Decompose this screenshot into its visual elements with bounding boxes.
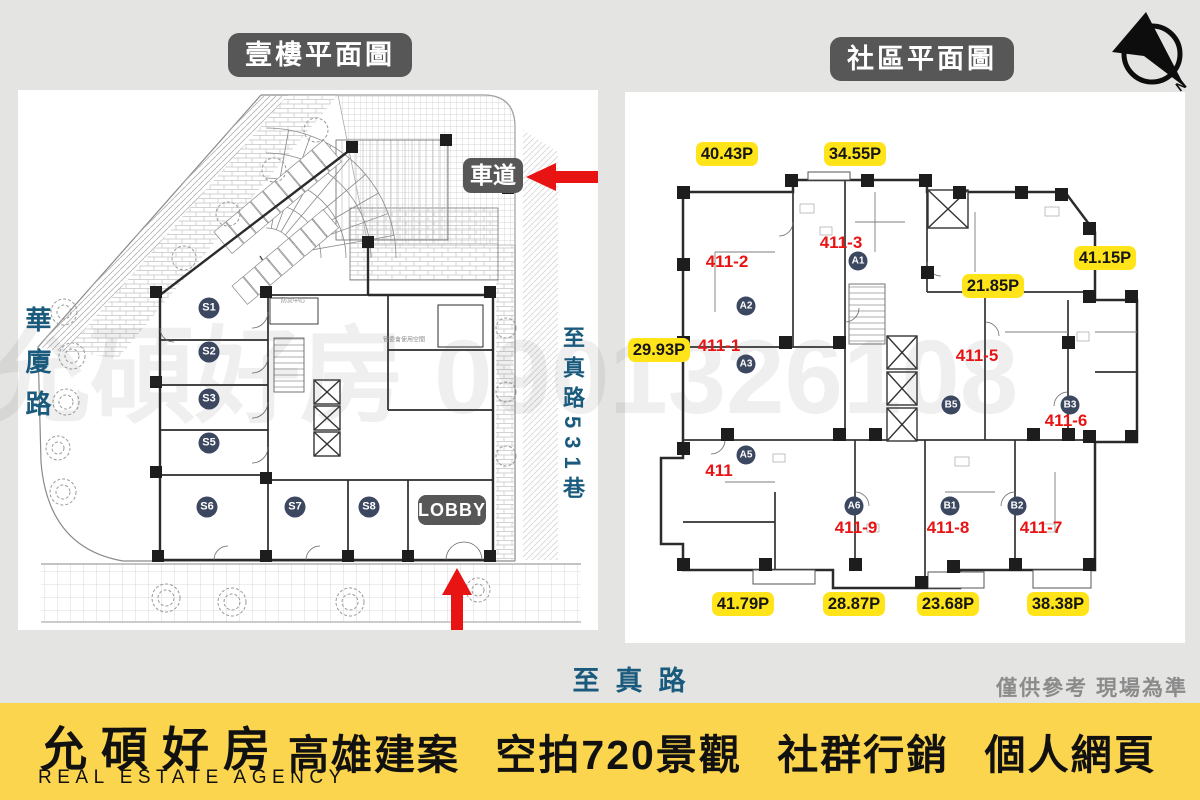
area-badge: 41.15P xyxy=(1074,246,1136,270)
road-label-east: 至真路531巷 xyxy=(556,326,588,507)
unit-type-circle: A3 xyxy=(737,355,756,374)
community-plan-title: 社區平面圖 xyxy=(830,37,1014,81)
unit-type-circle: B5 xyxy=(942,396,961,415)
community-plan-panel xyxy=(625,92,1185,643)
parking-stall-circle: S3 xyxy=(199,389,220,410)
parking-stall-circle: S2 xyxy=(199,342,220,363)
driveway-label: 車道 xyxy=(463,158,523,193)
unit-type-circle: A6 xyxy=(845,497,864,516)
parking-stall-circle: S8 xyxy=(359,497,380,518)
footer-banner: 允碩好房 REAL ESTATE AGENCY 高雄建案 空拍720景觀 社群行… xyxy=(0,703,1200,800)
area-badge: 23.68P xyxy=(917,592,979,616)
disclaimer-text: 僅供參考 現場為準 xyxy=(996,672,1188,702)
unit-type-circle: B2 xyxy=(1008,497,1027,516)
unit-type-circle: B1 xyxy=(941,497,960,516)
unit-number: 411-2 xyxy=(706,252,749,272)
driveway-arrow-icon xyxy=(526,161,598,193)
first-floor-plan-title: 壹樓平面圖 xyxy=(228,33,412,77)
parking-stall-circle: S5 xyxy=(199,433,220,454)
agency-tagline: 高雄建案 空拍720景觀 社群行銷 個人網頁 xyxy=(288,721,1157,781)
room-label: 防災中心 xyxy=(281,296,305,305)
unit-number: 411-8 xyxy=(927,518,970,538)
unit-number: 411 xyxy=(705,461,732,481)
road-label-south: 至真路 xyxy=(552,659,722,698)
lobby-label: LOBBY xyxy=(418,495,486,525)
parking-stall-circle: S6 xyxy=(197,497,218,518)
flyer-page: 允碩好房 0901326108 壹樓平面圖 社區平面圖 N 車道 LOBBY 華… xyxy=(0,0,1200,800)
compass-letter: N xyxy=(1173,77,1190,94)
area-badge: 34.55P xyxy=(824,142,886,166)
unit-type-circle: A1 xyxy=(849,252,868,271)
unit-number: 411-1 xyxy=(698,336,741,356)
parking-stall-circle: S7 xyxy=(285,497,306,518)
area-badge: 41.79P xyxy=(712,592,774,616)
area-badge: 38.38P xyxy=(1027,592,1089,616)
compass-north-icon: N xyxy=(1106,10,1196,94)
area-badge: 21.85P xyxy=(962,274,1024,298)
road-label-west: 華廈路 xyxy=(19,306,56,432)
unit-type-circle: A5 xyxy=(737,446,756,465)
area-badge: 28.87P xyxy=(823,592,885,616)
unit-number: 411-7 xyxy=(1020,518,1063,538)
unit-number: 411-9 xyxy=(835,518,878,538)
community-plan-drawing xyxy=(625,92,1185,643)
unit-type-circle: B3 xyxy=(1061,396,1080,415)
area-badge: 29.93P xyxy=(628,338,690,362)
area-badge: 40.43P xyxy=(696,142,758,166)
unit-number: 411-5 xyxy=(956,346,999,366)
entrance-arrow-icon xyxy=(441,568,473,630)
unit-number: 411-3 xyxy=(820,233,863,253)
parking-stall-circle: S1 xyxy=(199,298,220,319)
elevator-core xyxy=(314,380,340,456)
room-label: 管委會使用空間 xyxy=(383,335,425,344)
unit-type-circle: A2 xyxy=(737,297,756,316)
